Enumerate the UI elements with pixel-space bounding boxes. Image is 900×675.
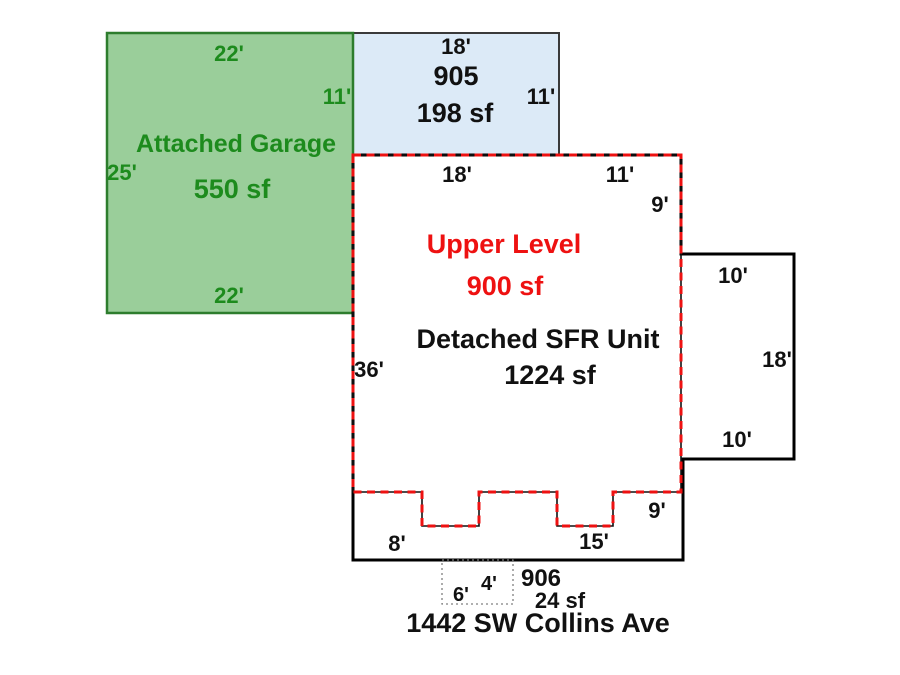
garage-dim-top-label: 22' <box>214 41 244 66</box>
upper-level-name-label: Upper Level <box>427 229 582 259</box>
garage-dim-bottom-label: 22' <box>214 283 244 308</box>
attached-garage-region <box>107 33 353 313</box>
floor-plan-sketch: 22' 11' Attached Garage 25' 550 sf 22' 1… <box>0 0 900 675</box>
upper-dim-left-label: 36' <box>354 357 384 382</box>
unit-905-area-label: 198 sf <box>417 98 495 128</box>
unit-905-id-label: 905 <box>433 61 478 91</box>
upper-dim-bottom-right-label: 15' <box>579 529 609 554</box>
upper-dim-top-right-label: 11' <box>606 162 635 187</box>
unit-905-dim-right-label: 11' <box>527 84 556 109</box>
bump-dim-top-label: 10' <box>718 263 748 288</box>
sfr-unit-name-label: Detached SFR Unit <box>416 324 659 354</box>
sfr-unit-outline <box>353 155 794 560</box>
upper-dim-top-left-label: 18' <box>442 162 472 187</box>
unit-906-dim-width-label: 6' <box>453 584 469 606</box>
sfr-unit-area-label: 1224 sf <box>504 360 597 390</box>
garage-dim-left-label: 25' <box>107 160 137 185</box>
address-label: 1442 SW Collins Ave <box>406 608 670 638</box>
sketch-svg: 22' 11' Attached Garage 25' 550 sf 22' 1… <box>0 0 900 675</box>
garage-dim-right-label: 11' <box>323 84 352 109</box>
upper-dim-bottom-left-label: 8' <box>388 531 405 556</box>
upper-dim-bottom-corner-label: 9' <box>648 498 665 523</box>
garage-area-label: 550 sf <box>194 174 272 204</box>
unit-906-dim-gap-label: 4' <box>481 573 497 595</box>
bump-dim-bottom-label: 10' <box>722 427 752 452</box>
unit-905-dim-top-label: 18' <box>441 34 471 59</box>
garage-name-label: Attached Garage <box>136 130 336 158</box>
upper-level-area-label: 900 sf <box>467 271 545 301</box>
bump-dim-right-label: 18' <box>762 347 792 372</box>
upper-dim-right-top-label: 9' <box>651 192 668 217</box>
